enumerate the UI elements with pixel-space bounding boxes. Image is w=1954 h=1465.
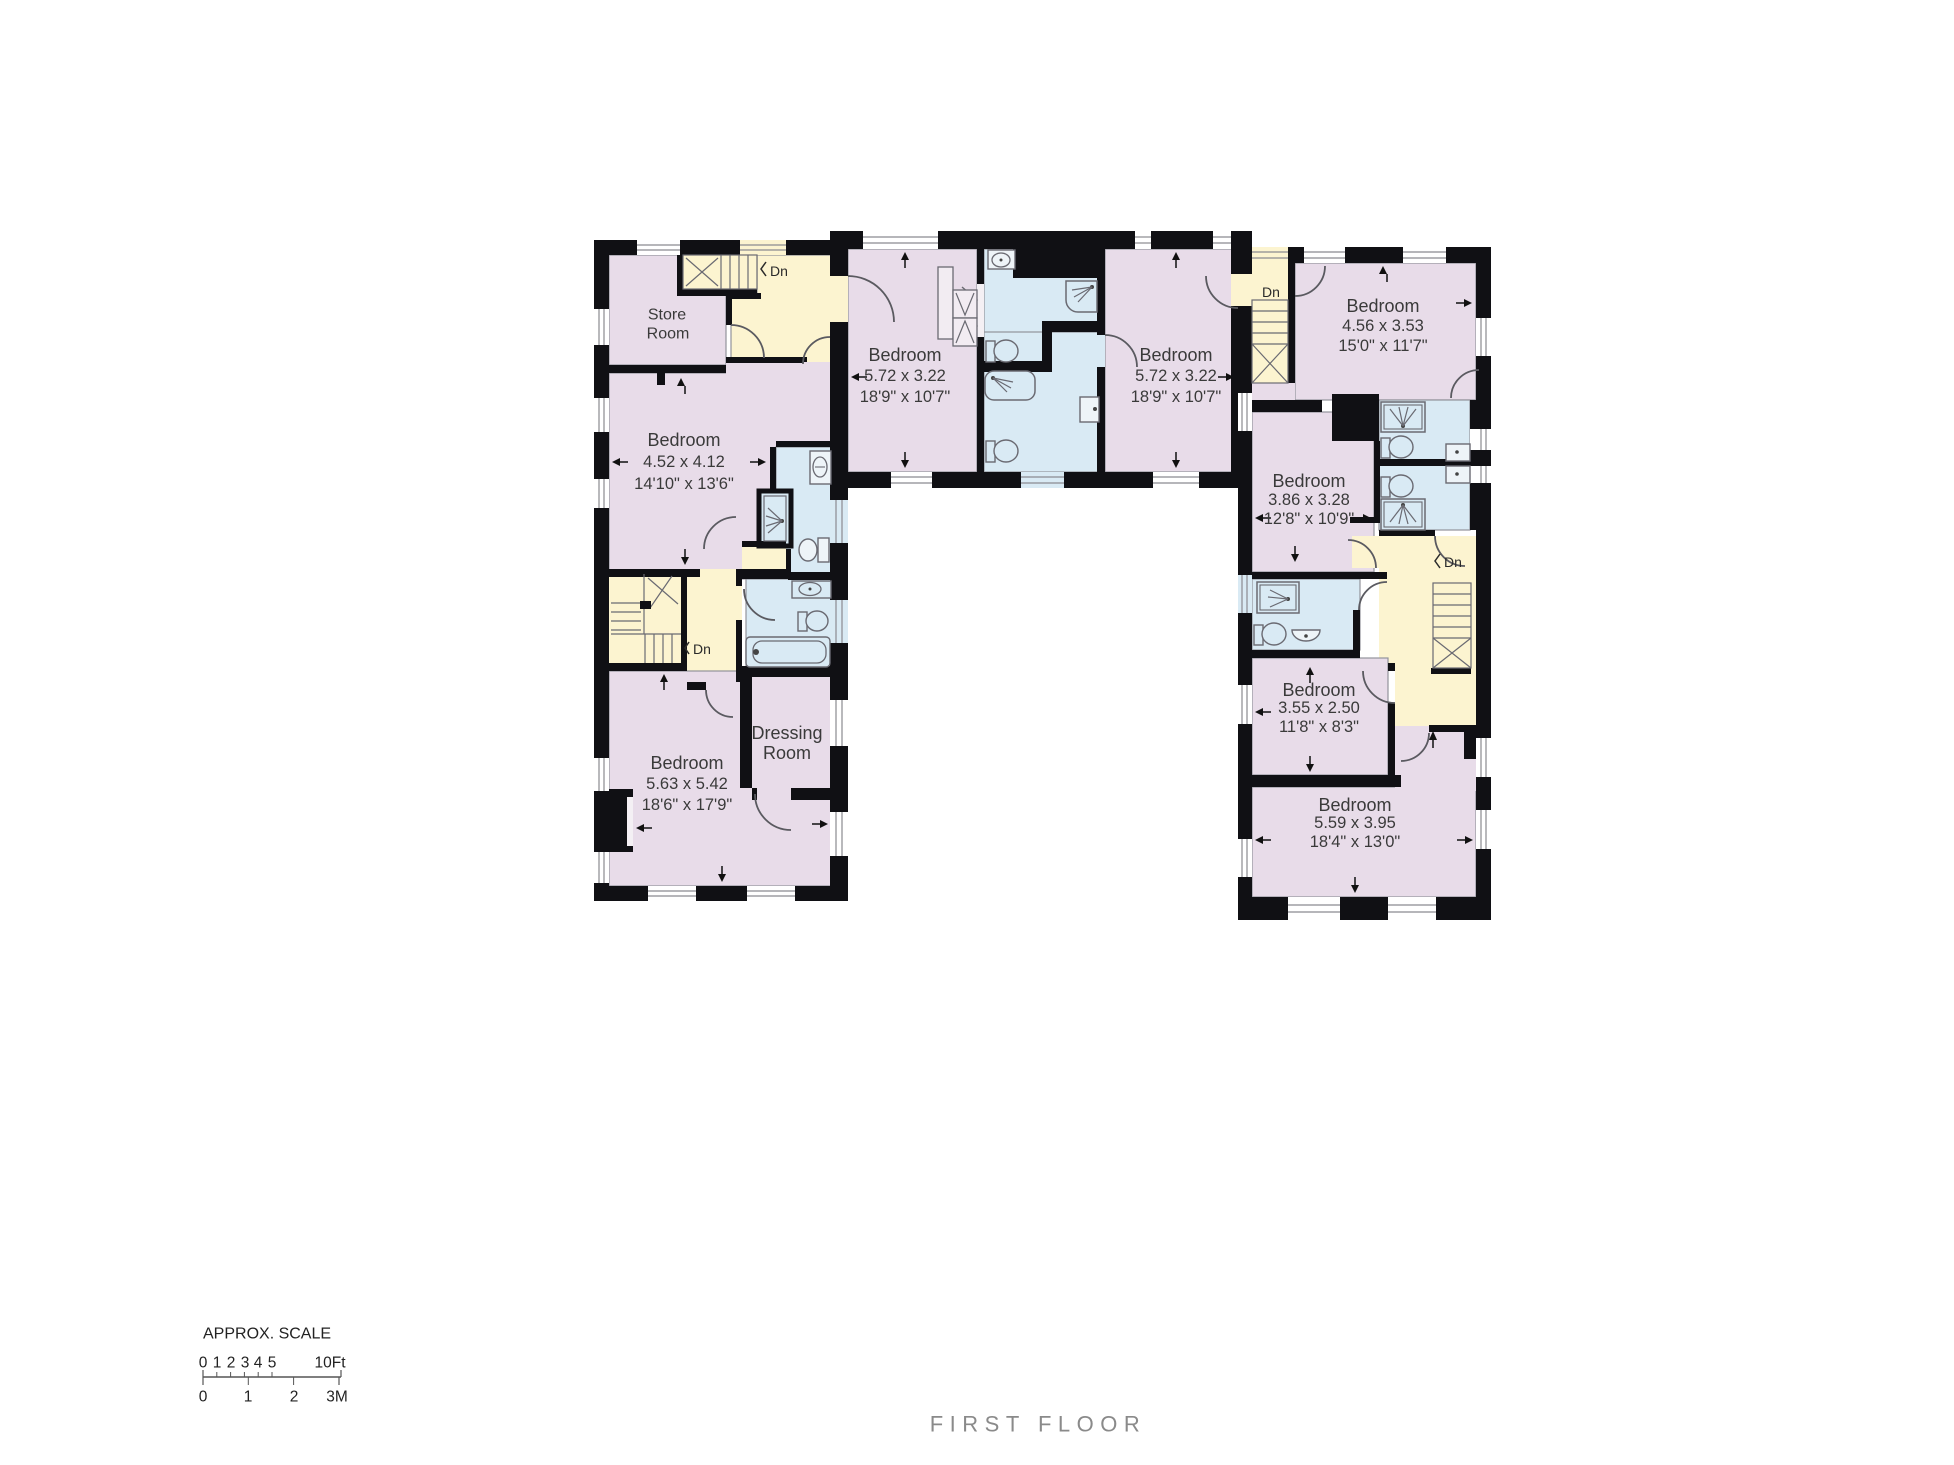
svg-text:Dn: Dn [693,641,711,657]
svg-text:18'9" x 10'7": 18'9" x 10'7" [1131,388,1222,406]
svg-text:14'10" x 13'6": 14'10" x 13'6" [634,475,734,493]
svg-text:3M: 3M [326,1389,348,1406]
svg-text:5.72 x 3.22: 5.72 x 3.22 [864,367,946,385]
svg-text:5.72 x 3.22: 5.72 x 3.22 [1135,367,1217,385]
svg-text:1: 1 [244,1389,253,1406]
svg-text:15'0" x 11'7": 15'0" x 11'7" [1338,337,1427,355]
svg-text:Bedroom: Bedroom [647,430,720,450]
svg-text:0: 0 [199,1389,208,1406]
svg-text:Bedroom: Bedroom [1139,345,1212,365]
svg-text:Bedroom: Bedroom [1282,680,1355,700]
svg-text:Bedroom: Bedroom [1346,296,1419,316]
svg-text:11'8" x 8'3": 11'8" x 8'3" [1279,718,1359,736]
svg-text:4: 4 [254,1355,263,1372]
svg-text:18'9" x 10'7": 18'9" x 10'7" [860,388,951,406]
svg-text:2: 2 [290,1389,299,1406]
svg-text:Bedroom: Bedroom [1318,795,1391,815]
svg-text:0: 0 [199,1355,208,1372]
svg-text:10Ft: 10Ft [314,1355,346,1372]
svg-text:Bedroom: Bedroom [650,753,723,773]
svg-text:Dn: Dn [770,263,788,279]
svg-text:FIRST FLOOR: FIRST FLOOR [930,1412,1147,1437]
svg-text:12'8" x 10'9": 12'8" x 10'9" [1264,510,1355,528]
svg-text:Dn: Dn [1262,284,1280,300]
svg-text:Room: Room [647,326,690,343]
svg-text:18'6" x 17'9": 18'6" x 17'9" [642,796,733,814]
svg-text:4.52 x 4.12: 4.52 x 4.12 [643,453,725,471]
svg-text:Bedroom: Bedroom [1272,471,1345,491]
svg-text:Dn: Dn [1444,554,1462,570]
svg-text:3.86 x 3.28: 3.86 x 3.28 [1268,491,1350,509]
svg-text:5.59 x 3.95: 5.59 x 3.95 [1314,814,1396,832]
svg-text:1: 1 [213,1355,222,1372]
svg-text:Bedroom: Bedroom [868,345,941,365]
svg-text:Store: Store [648,307,686,324]
svg-text:Room: Room [763,743,811,763]
svg-text:3: 3 [241,1355,250,1372]
svg-text:18'4" x 13'0": 18'4" x 13'0" [1310,833,1401,851]
svg-text:2: 2 [227,1355,236,1372]
svg-text:4.56 x 3.53: 4.56 x 3.53 [1342,317,1424,335]
svg-text:5.63 x 5.42: 5.63 x 5.42 [646,775,728,793]
svg-text:3.55 x 2.50: 3.55 x 2.50 [1278,699,1360,717]
svg-text:Dressing: Dressing [751,723,822,743]
svg-text:APPROX. SCALE: APPROX. SCALE [203,1326,331,1343]
svg-text:5: 5 [268,1355,277,1372]
